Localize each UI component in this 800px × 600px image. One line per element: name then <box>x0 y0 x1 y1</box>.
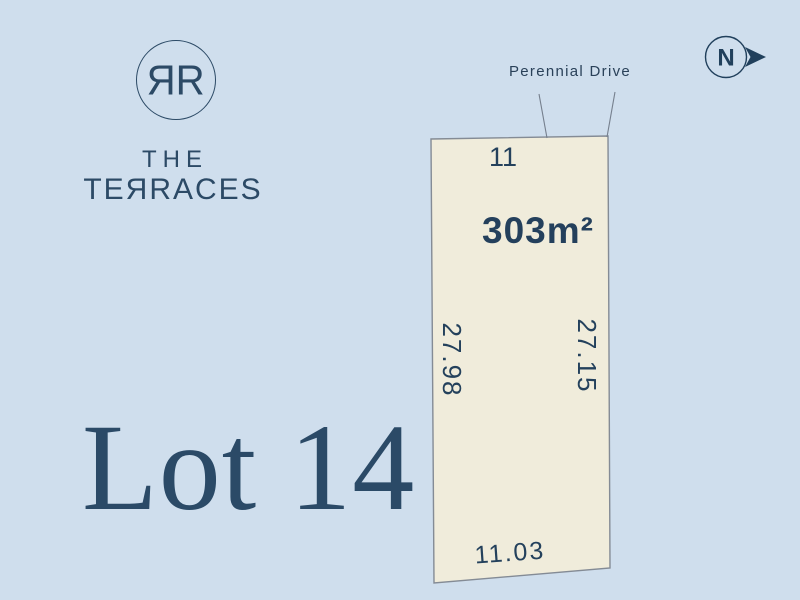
lot-title: Lot 14 <box>82 406 415 530</box>
lot-street-number: 11 <box>473 143 533 173</box>
dimension-right-boundary: 27.15 <box>574 296 600 416</box>
brand-wordmark-line1: THE <box>52 148 292 172</box>
dimension-left-boundary: 27.98 <box>439 300 465 420</box>
north-compass: N <box>700 32 772 84</box>
north-arrow-icon <box>745 47 766 67</box>
lot-area-label: 303m² <box>448 211 628 252</box>
compass-north-label: N <box>717 45 734 72</box>
brand-logo-circle: ЯR <box>136 40 216 120</box>
street-name-label: Perennial Drive <box>480 63 660 80</box>
brand-wordmark: THE TEЯRACES <box>52 148 292 205</box>
brand-monogram: ЯR <box>147 59 205 101</box>
street-leader-line-right <box>607 92 615 137</box>
lot-plan-canvas: ЯR THE TEЯRACES Lot 14 Perennial Drive 1… <box>0 0 800 600</box>
street-leader-line-left <box>539 94 547 138</box>
brand-wordmark-line2: TEЯRACES <box>52 175 292 205</box>
